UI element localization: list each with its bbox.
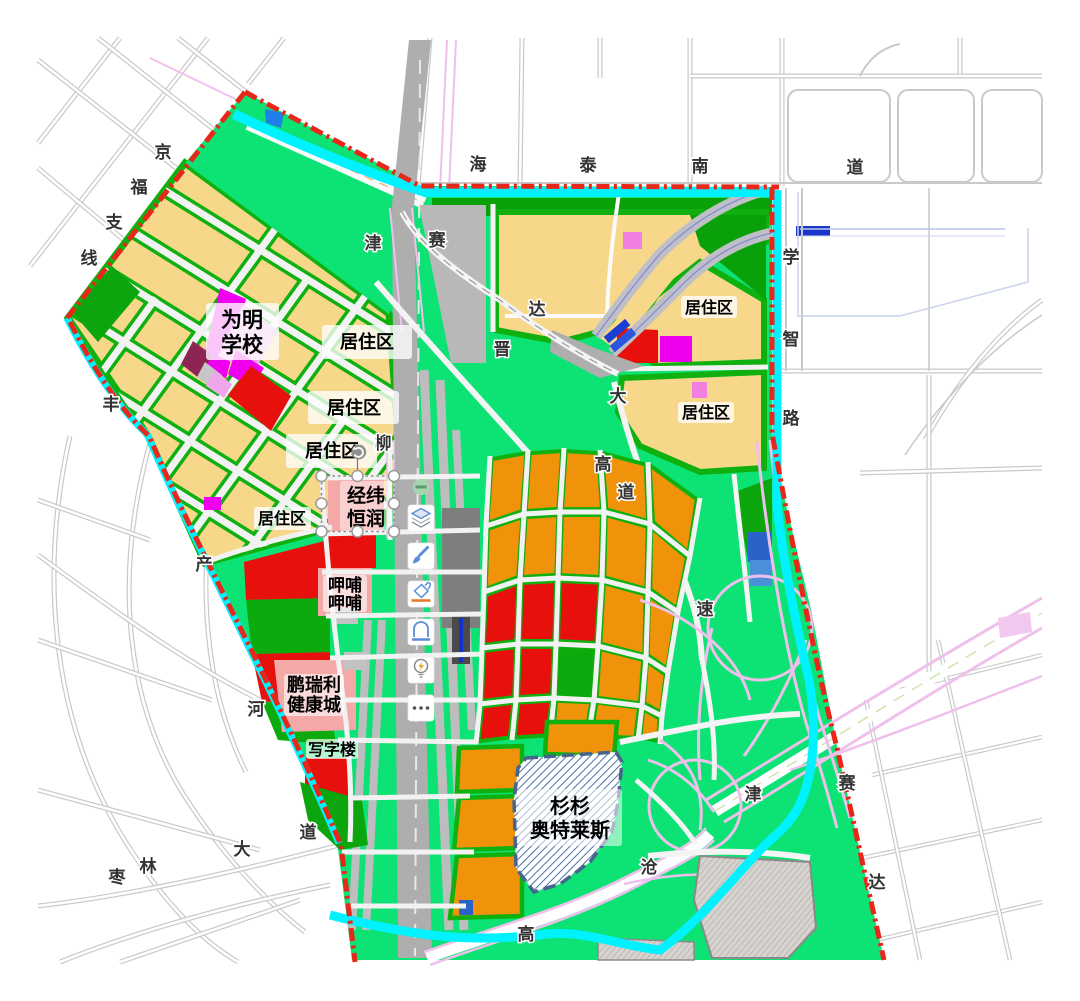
svg-text:经纬: 经纬 [347,484,385,507]
svg-text:健康城: 健康城 [287,694,341,715]
svg-text:海: 海 [470,154,487,174]
svg-text:丰: 丰 [103,394,120,414]
svg-text:居住区: 居住区 [327,397,381,418]
svg-text:居住区: 居住区 [685,298,733,317]
svg-text:杉杉: 杉杉 [550,795,590,818]
svg-text:鹏瑞利: 鹏瑞利 [286,674,341,695]
svg-text:呷哺: 呷哺 [328,593,362,613]
svg-text:居住区: 居住区 [340,331,394,352]
svg-text:道: 道 [618,482,635,502]
svg-text:赛: 赛 [838,773,857,793]
svg-text:智: 智 [783,329,800,349]
svg-text:为明: 为明 [221,309,263,332]
svg-text:沧: 沧 [641,857,658,877]
svg-text:津: 津 [365,233,382,253]
svg-text:京: 京 [155,142,172,162]
svg-text:津: 津 [745,784,762,804]
svg-text:高: 高 [595,454,612,474]
svg-text:居住区: 居住区 [682,403,730,422]
svg-text:泰: 泰 [580,155,598,175]
svg-text:支: 支 [106,212,124,232]
svg-text:达: 达 [869,872,886,892]
svg-text:柳: 柳 [375,433,392,453]
svg-text:道: 道 [847,157,864,177]
svg-text:线: 线 [81,248,98,268]
svg-text:学校: 学校 [221,333,264,357]
svg-text:恒润: 恒润 [347,507,385,530]
svg-text:南: 南 [692,156,709,176]
svg-text:居住区: 居住区 [258,509,306,528]
svg-text:大: 大 [234,839,251,859]
svg-text:达: 达 [529,299,546,319]
svg-text:路: 路 [783,408,801,428]
svg-text:速: 速 [697,599,714,619]
svg-text:学: 学 [783,247,800,267]
svg-text:居住区: 居住区 [305,440,359,461]
svg-text:赛: 赛 [428,230,447,250]
svg-text:林: 林 [140,856,157,876]
svg-text:大: 大 [610,386,627,406]
svg-text:道: 道 [300,822,317,842]
svg-text:枣: 枣 [108,867,127,887]
svg-text:河: 河 [248,700,265,719]
svg-text:高: 高 [518,924,535,944]
svg-text:写字楼: 写字楼 [308,740,356,759]
svg-text:福: 福 [130,177,148,197]
svg-text:产: 产 [196,554,213,574]
svg-text:呷哺: 呷哺 [328,575,362,595]
svg-text:奥特莱斯: 奥特莱斯 [530,818,610,842]
svg-text:晋: 晋 [494,340,511,359]
